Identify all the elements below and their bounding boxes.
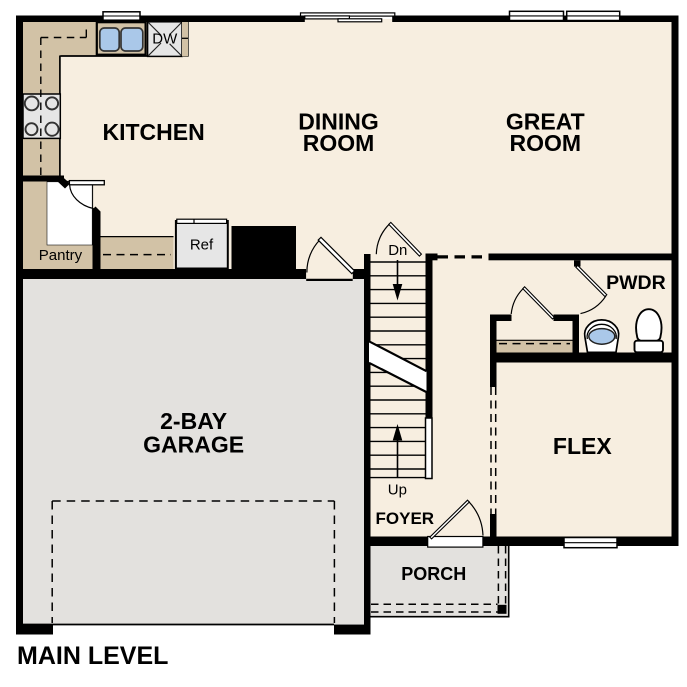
svg-text:FLEX: FLEX [553,433,612,459]
svg-text:MAIN LEVEL: MAIN LEVEL [17,642,168,670]
svg-text:DW: DW [152,31,178,48]
svg-text:ROOM: ROOM [510,130,582,156]
svg-text:Up: Up [388,482,407,499]
svg-text:KITCHEN: KITCHEN [102,119,204,145]
svg-text:Pantry: Pantry [39,247,83,264]
svg-text:Dn: Dn [388,242,407,259]
svg-text:FOYER: FOYER [376,509,435,528]
svg-text:2-BAY: 2-BAY [160,408,227,434]
svg-text:PWDR: PWDR [606,272,666,294]
svg-text:ROOM: ROOM [303,130,375,156]
svg-text:Ref: Ref [190,237,214,254]
svg-text:GARAGE: GARAGE [143,432,244,458]
svg-text:PORCH: PORCH [401,564,466,584]
